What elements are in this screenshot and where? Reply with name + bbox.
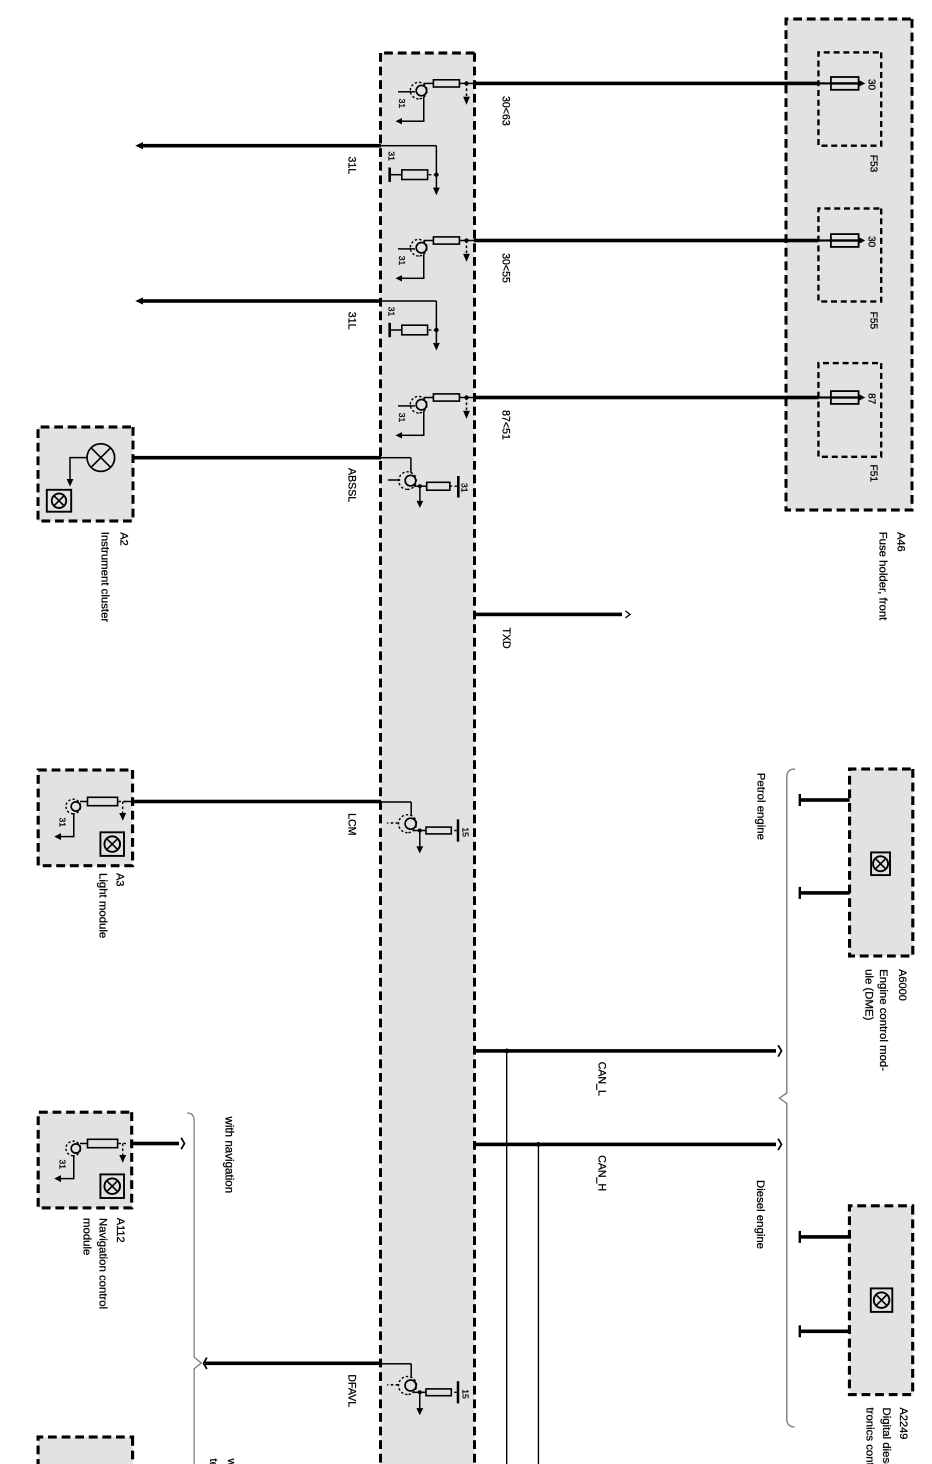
svg-text:Navigation control: Navigation control xyxy=(97,1218,109,1309)
svg-text:LCM: LCM xyxy=(346,813,358,835)
svg-text:A2: A2 xyxy=(118,532,130,545)
svg-text:15: 15 xyxy=(461,1389,471,1399)
svg-text:Digital diesel elec-: Digital diesel elec- xyxy=(880,1408,892,1464)
svg-text:A3: A3 xyxy=(114,873,126,886)
svg-text:DFAVL: DFAVL xyxy=(346,1374,358,1407)
svg-text:with navigation: with navigation xyxy=(223,1116,236,1194)
svg-text:87: 87 xyxy=(866,393,877,405)
svg-text:Engine control mod-: Engine control mod- xyxy=(877,969,889,1071)
svg-text:ABSSL: ABSSL xyxy=(346,468,358,502)
svg-text:31: 31 xyxy=(58,1160,68,1170)
svg-text:with: with xyxy=(225,1458,237,1464)
svg-text:A2249: A2249 xyxy=(897,1408,909,1440)
svg-text:31: 31 xyxy=(397,256,407,266)
svg-text:15: 15 xyxy=(461,827,471,837)
svg-text:30: 30 xyxy=(866,79,877,91)
svg-text:31: 31 xyxy=(387,151,397,161)
svg-text:A112: A112 xyxy=(114,1218,126,1243)
svg-text:Diesel engine: Diesel engine xyxy=(754,1180,766,1249)
svg-text:30<63: 30<63 xyxy=(500,96,512,126)
svg-text:30<55: 30<55 xyxy=(500,253,512,283)
svg-text:Light module: Light module xyxy=(97,873,109,938)
svg-text:TXD: TXD xyxy=(500,628,512,650)
svg-text:Fuse holder, front: Fuse holder, front xyxy=(877,532,889,621)
svg-text:31: 31 xyxy=(397,99,407,109)
svg-text:CAN_H: CAN_H xyxy=(596,1155,608,1191)
svg-text:CAN_L: CAN_L xyxy=(596,1062,608,1096)
svg-text:31: 31 xyxy=(460,483,470,493)
svg-text:31: 31 xyxy=(58,818,68,828)
svg-text:31: 31 xyxy=(387,307,397,317)
svg-text:31: 31 xyxy=(397,413,407,423)
svg-text:87<51: 87<51 xyxy=(500,410,512,440)
svg-text:tronics control unit: tronics control unit xyxy=(864,1408,876,1464)
svg-text:tele: tele xyxy=(207,1459,219,1464)
svg-text:F51: F51 xyxy=(868,465,879,483)
svg-text:A6000: A6000 xyxy=(896,969,908,1001)
svg-text:Instrument cluster: Instrument cluster xyxy=(99,532,111,623)
svg-text:31L: 31L xyxy=(346,157,358,175)
svg-text:ule (DME): ule (DME) xyxy=(863,969,875,1020)
svg-text:F55: F55 xyxy=(868,312,879,330)
svg-text:A46: A46 xyxy=(895,532,907,552)
svg-text:31L: 31L xyxy=(346,312,358,330)
svg-text:30: 30 xyxy=(866,236,877,248)
svg-text:Petrol engine: Petrol engine xyxy=(755,773,767,840)
svg-text:module: module xyxy=(81,1218,93,1255)
svg-text:F53: F53 xyxy=(868,155,879,173)
